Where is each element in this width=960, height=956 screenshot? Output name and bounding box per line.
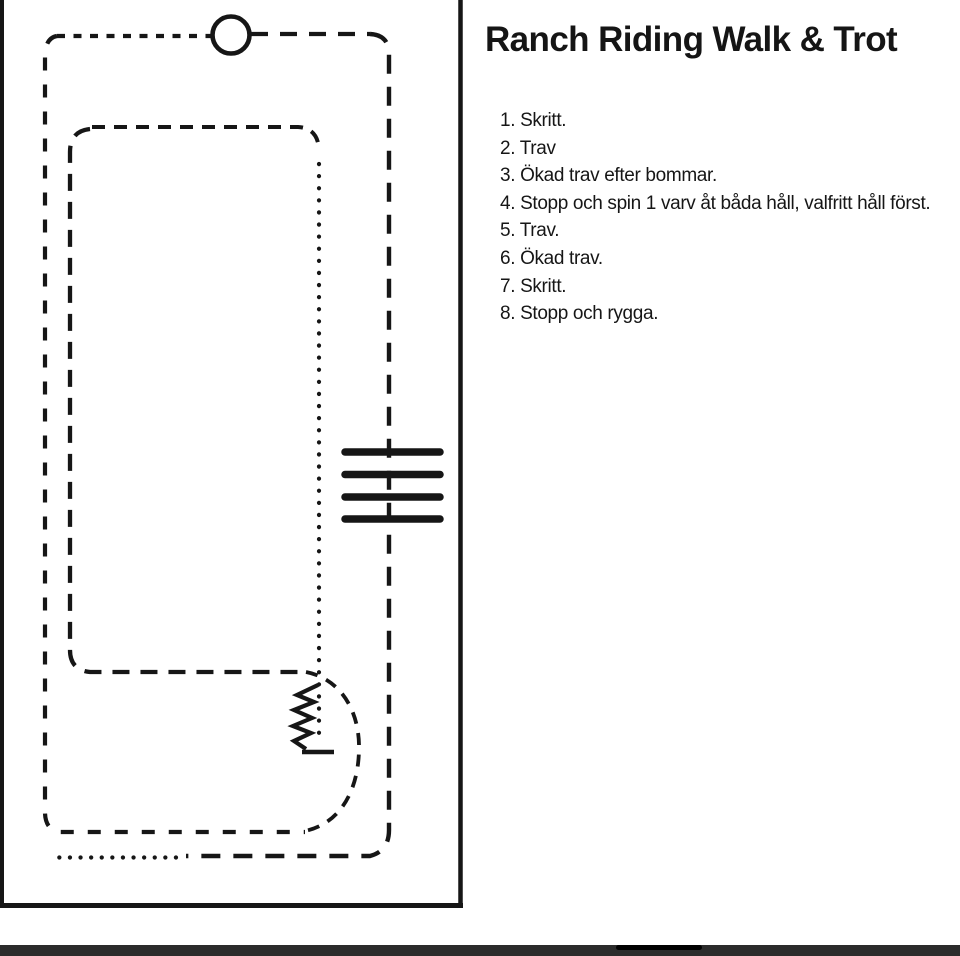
instruction-item-2: 2. Trav <box>500 135 958 163</box>
scrollbar-thumb[interactable] <box>616 945 702 950</box>
inner-track-left-bottom <box>70 129 305 672</box>
bottom-scrollbar-track[interactable] <box>0 945 960 956</box>
instruction-list: 1. Skritt. 2. Trav 3. Ökad trav efter bo… <box>500 107 958 328</box>
instruction-item-4: 4. Stopp och spin 1 varv åt båda håll, v… <box>500 190 958 218</box>
instruction-item-8: 8. Stopp och rygga. <box>500 300 958 328</box>
instruction-item-6: 6. Ökad trav. <box>500 245 958 273</box>
instructions-panel: Ranch Riding Walk & Trot 1. Skritt. 2. T… <box>482 0 960 905</box>
outer-track-left-bottom <box>45 36 305 832</box>
page-title: Ranch Riding Walk & Trot <box>485 20 955 60</box>
inner-track-top-edge <box>92 127 319 150</box>
backup-zigzag-icon <box>293 685 318 749</box>
start-spin-circle-marker <box>213 17 250 54</box>
outer-track-right-edge <box>186 34 389 856</box>
instruction-item-7: 7. Skritt. <box>500 273 958 301</box>
instruction-item-3: 3. Ökad trav efter bommar. <box>500 162 958 190</box>
instruction-item-5: 5. Trav. <box>500 217 958 245</box>
pattern-sheet-page: Ranch Riding Walk & Trot 1. Skritt. 2. T… <box>0 0 960 956</box>
instruction-item-1: 1. Skritt. <box>500 107 958 135</box>
trot-poles-group <box>345 452 440 519</box>
